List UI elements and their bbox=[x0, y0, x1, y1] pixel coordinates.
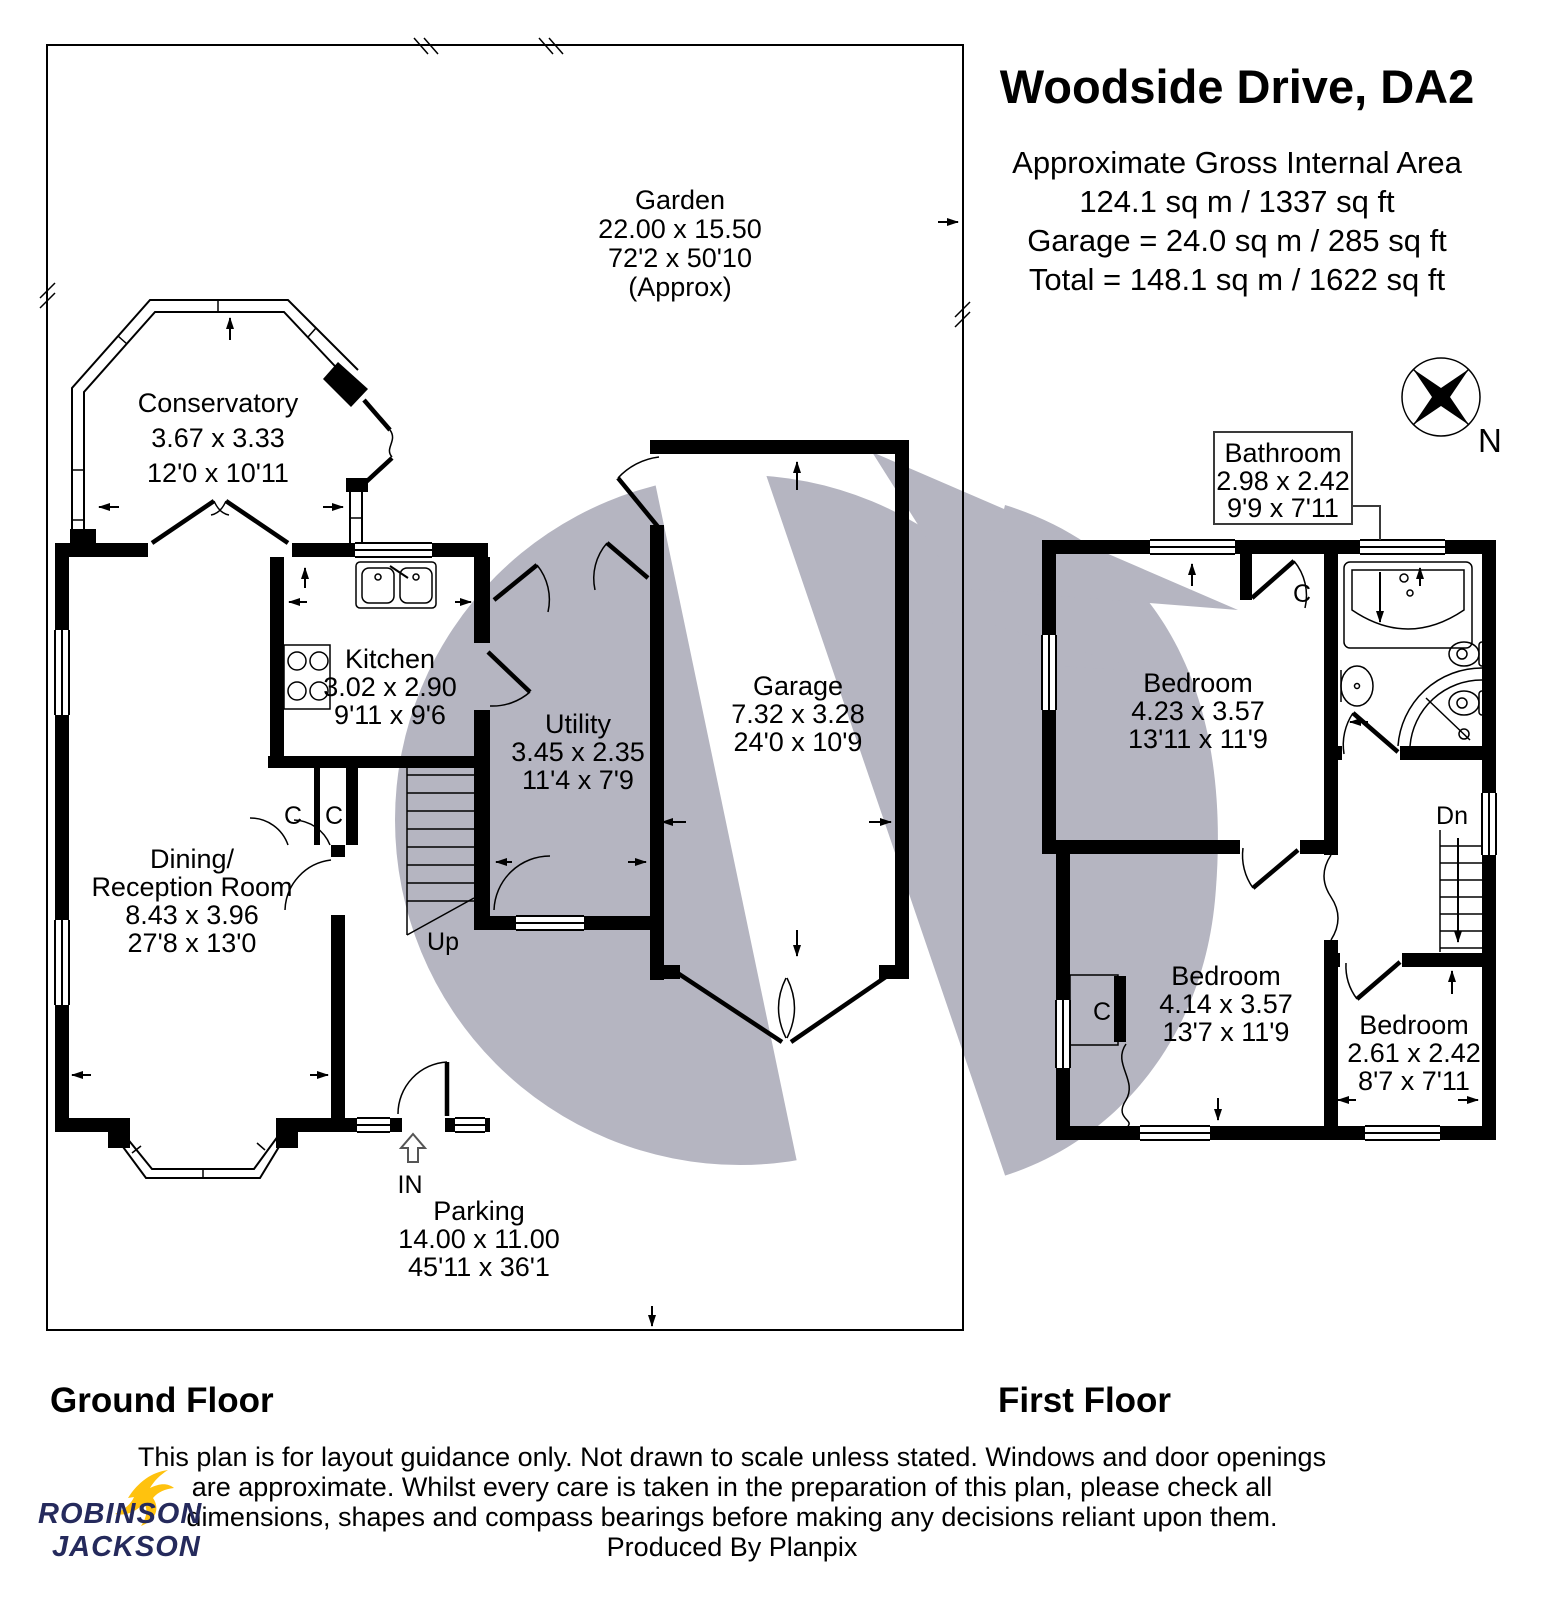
floorplan-page: Bathroom 2.98 x 2.42 9'9 x 7'11 N Woodsi… bbox=[0, 0, 1555, 1600]
garage-metric: 7.32 x 3.28 bbox=[731, 699, 865, 729]
utility-imperial: 11'4 x 7'9 bbox=[522, 765, 634, 795]
window-icon bbox=[1140, 1126, 1210, 1140]
door-icon bbox=[1346, 962, 1400, 999]
closet-label: C bbox=[1093, 998, 1111, 1026]
bathroom-label: Bathroom bbox=[1224, 438, 1341, 468]
door-icon bbox=[1243, 848, 1298, 888]
first-floor-title: First Floor bbox=[998, 1381, 1171, 1420]
dining-label-1: Dining/ bbox=[150, 844, 235, 874]
page-title: Woodside Drive, DA2 bbox=[1000, 60, 1474, 113]
bathroom-metric: 2.98 x 2.42 bbox=[1216, 466, 1350, 496]
utility-metric: 3.45 x 2.35 bbox=[511, 737, 645, 767]
stairs-down-icon bbox=[1440, 830, 1482, 952]
window-icon bbox=[1482, 793, 1496, 855]
garden-metric: 22.00 x 15.50 bbox=[598, 214, 762, 244]
kitchen-imperial: 9'11 x 9'6 bbox=[334, 700, 446, 730]
window-icon bbox=[1150, 540, 1235, 554]
area-line: Approximate Gross Internal Area bbox=[1012, 145, 1462, 180]
closet-label: C bbox=[325, 802, 343, 830]
floorplan-drawing: Bathroom 2.98 x 2.42 9'9 x 7'11 N Woodsi… bbox=[0, 0, 1555, 1600]
stairs-down-label: Dn bbox=[1436, 802, 1468, 830]
area-line: 124.1 sq m / 1337 sq ft bbox=[1079, 184, 1395, 219]
garage-imperial: 24'0 x 10'9 bbox=[734, 727, 863, 757]
utility-label: Utility bbox=[545, 709, 611, 739]
garden-imperial: 72'2 x 50'10 bbox=[608, 243, 752, 273]
bedroom3-imperial: 8'7 x 7'11 bbox=[1358, 1066, 1470, 1096]
conservatory-label: Conservatory bbox=[138, 388, 299, 418]
dining-metric: 8.43 x 3.96 bbox=[125, 900, 259, 930]
dining-imperial: 27'8 x 13'0 bbox=[128, 928, 257, 958]
bedroom1-label: Bedroom bbox=[1143, 668, 1253, 698]
wall-post bbox=[323, 362, 368, 407]
entrance-arrow-icon bbox=[401, 1134, 425, 1162]
robinson-jackson-logo: ROBINSON JACKSON bbox=[38, 1470, 202, 1563]
kitchen-metric: 3.02 x 2.90 bbox=[323, 672, 457, 702]
disclaimer-line: This plan is for layout guidance only. N… bbox=[138, 1442, 1326, 1472]
bedroom1-imperial: 13'11 x 11'9 bbox=[1128, 724, 1268, 754]
conservatory-structure bbox=[70, 300, 393, 543]
disclaimer-line: dimensions, shapes and compass bearings … bbox=[186, 1502, 1277, 1532]
bedroom1-metric: 4.23 x 3.57 bbox=[1131, 696, 1265, 726]
garage-label: Garage bbox=[753, 671, 843, 701]
bathroom-label-box: Bathroom 2.98 x 2.42 9'9 x 7'11 bbox=[1214, 432, 1380, 540]
window-icon bbox=[1360, 540, 1445, 554]
conservatory-imperial: 12'0 x 10'11 bbox=[147, 458, 289, 488]
parking-metric: 14.00 x 11.00 bbox=[398, 1224, 560, 1254]
garden-approx: (Approx) bbox=[628, 272, 732, 302]
entrance-label: IN bbox=[398, 1171, 423, 1199]
closet-label: C bbox=[284, 802, 302, 830]
window-icon bbox=[55, 920, 69, 1005]
bedroom3-metric: 2.61 x 2.42 bbox=[1347, 1038, 1481, 1068]
entrance-door-icon bbox=[398, 1062, 447, 1116]
sink-icon bbox=[1341, 666, 1373, 706]
bedroom2-metric: 4.14 x 3.57 bbox=[1159, 989, 1293, 1019]
compass-icon: N bbox=[1402, 358, 1502, 459]
garden-label: Garden bbox=[635, 185, 725, 215]
footer: Ground Floor First Floor This plan is fo… bbox=[38, 1381, 1326, 1563]
window-icon bbox=[516, 916, 584, 930]
door-icon bbox=[1343, 713, 1398, 754]
parking-imperial: 45'11 x 36'1 bbox=[408, 1252, 550, 1282]
parking-label: Parking bbox=[433, 1196, 525, 1226]
window-icon bbox=[1365, 1126, 1440, 1140]
bedroom3-label: Bedroom bbox=[1359, 1010, 1469, 1040]
stairs-up-label: Up bbox=[427, 928, 459, 956]
bay-window-icon bbox=[112, 1132, 288, 1178]
conservatory-metric: 3.67 x 3.33 bbox=[151, 423, 285, 453]
bedroom2-label: Bedroom bbox=[1171, 961, 1281, 991]
window-icon bbox=[357, 1118, 390, 1132]
brand-line-1: ROBINSON bbox=[38, 1498, 202, 1530]
window-icon bbox=[355, 543, 432, 557]
closet-door-arc bbox=[250, 818, 288, 845]
window-icon bbox=[55, 630, 69, 715]
bedroom2-imperial: 13'7 x 11'9 bbox=[1163, 1017, 1290, 1047]
area-line: Garage = 24.0 sq m / 285 sq ft bbox=[1027, 223, 1447, 258]
closet-label: C bbox=[1293, 580, 1311, 608]
boundary-break-icon bbox=[40, 38, 970, 327]
disclaimer-line: are approximate. Whilst every care is ta… bbox=[192, 1472, 1273, 1502]
ground-floor-title: Ground Floor bbox=[50, 1381, 274, 1420]
produced-by-label: Produced By Planpix bbox=[607, 1532, 858, 1562]
compass-north-label: N bbox=[1478, 422, 1502, 459]
shower-icon bbox=[1398, 668, 1482, 746]
window-icon bbox=[1056, 1000, 1070, 1068]
header: Woodside Drive, DA2 Approximate Gross In… bbox=[1000, 60, 1474, 297]
dining-label-2: Reception Room bbox=[91, 872, 292, 902]
bathroom-imperial: 9'9 x 7'11 bbox=[1227, 493, 1339, 523]
french-doors-icon bbox=[152, 501, 288, 543]
sink-icon bbox=[356, 562, 436, 608]
opening-squiggle-icon bbox=[1324, 855, 1338, 940]
kitchen-label: Kitchen bbox=[345, 644, 435, 674]
area-line: Total = 148.1 sq m / 1622 sq ft bbox=[1029, 262, 1446, 297]
window-icon bbox=[455, 1118, 485, 1132]
window-icon bbox=[1042, 635, 1056, 710]
brand-line-2: JACKSON bbox=[52, 1531, 201, 1563]
bathtub-icon bbox=[1344, 562, 1472, 648]
